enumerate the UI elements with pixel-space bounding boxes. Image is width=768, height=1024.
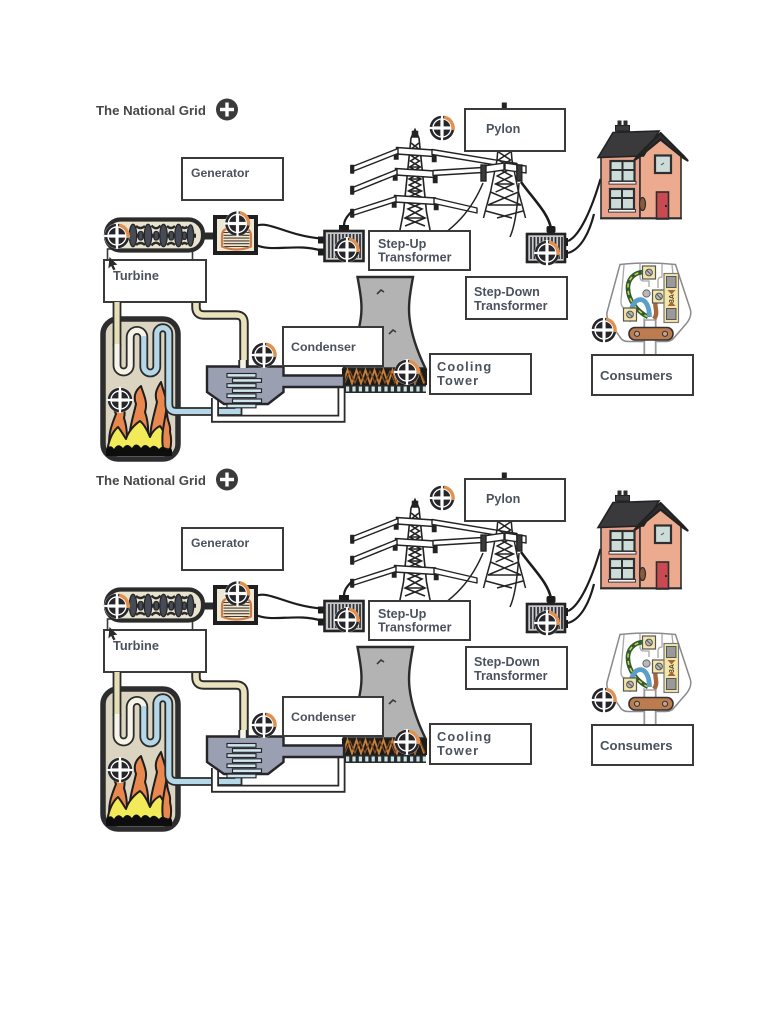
svg-text:Pylon: Pylon <box>486 492 520 506</box>
svg-text:Generator: Generator <box>191 536 250 550</box>
svg-text:Condenser: Condenser <box>291 710 356 724</box>
svg-text:3A: 3A <box>669 294 676 303</box>
svg-text:Generator: Generator <box>191 166 250 180</box>
svg-text:Pylon: Pylon <box>486 122 520 136</box>
svg-text:Step-Up: Step-Up <box>378 237 427 251</box>
svg-text:Tower: Tower <box>437 743 479 758</box>
svg-text:Consumers: Consumers <box>600 738 673 753</box>
svg-text:Transformer: Transformer <box>378 251 452 265</box>
svg-text:Step-Down: Step-Down <box>474 285 540 299</box>
svg-text:Turbine: Turbine <box>113 268 159 283</box>
svg-text:Transformer: Transformer <box>378 621 452 635</box>
svg-text:Tower: Tower <box>437 373 479 388</box>
svg-text:Cooling: Cooling <box>437 729 492 744</box>
svg-text:Cooling: Cooling <box>437 359 492 374</box>
svg-text:Transformer: Transformer <box>474 669 548 683</box>
svg-text:Condenser: Condenser <box>291 340 356 354</box>
svg-text:The National Grid: The National Grid <box>96 103 206 118</box>
svg-text:Consumers: Consumers <box>600 368 673 383</box>
svg-text:Step-Down: Step-Down <box>474 655 540 669</box>
svg-text:3A: 3A <box>669 664 676 673</box>
svg-text:The National Grid: The National Grid <box>96 473 206 488</box>
svg-text:Turbine: Turbine <box>113 638 159 653</box>
svg-text:Step-Up: Step-Up <box>378 607 427 621</box>
svg-text:Transformer: Transformer <box>474 299 548 313</box>
